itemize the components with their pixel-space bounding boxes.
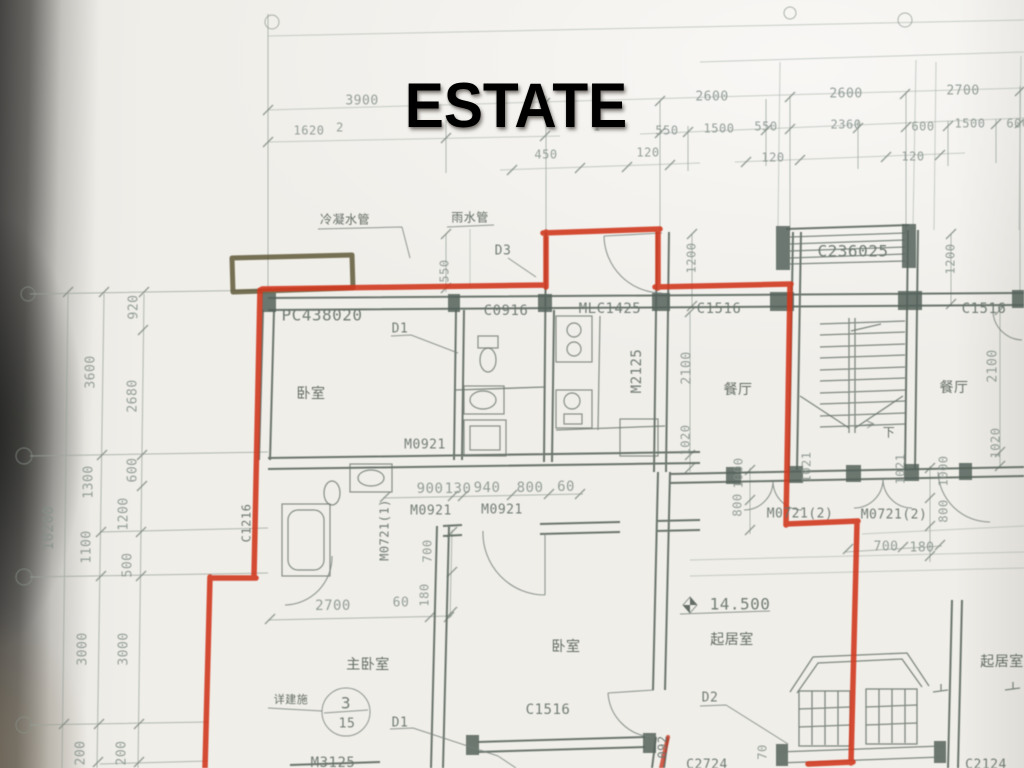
- elevation-marker-icon: [683, 597, 697, 613]
- dim-2600-a: 2600: [695, 90, 728, 105]
- dim-1500-b: 1500: [955, 117, 986, 131]
- room-living-right: 起居室: [980, 653, 1024, 670]
- dim-200-a: 200: [74, 741, 89, 766]
- dim-2700-top: 2700: [946, 84, 979, 99]
- dim-600-b: 600: [1006, 117, 1024, 131]
- label-m0721-1: M0721(1): [378, 499, 392, 561]
- dim-1200-mid-a: 1200: [685, 243, 699, 274]
- label-stairs-down: 下: [883, 426, 896, 440]
- dim-200-b: 200: [115, 741, 130, 766]
- dim-1020-right: 1020: [989, 428, 1003, 459]
- dim-70: 70: [756, 744, 770, 759]
- label-c2724: C2724: [686, 758, 728, 768]
- dim-700-mid: 700: [421, 539, 435, 562]
- dim-3900: 3900: [345, 94, 378, 109]
- dim-2680: 2680: [126, 379, 141, 412]
- room-dining-left: 餐厅: [724, 382, 753, 398]
- walls-layer: [259, 224, 1024, 768]
- label-c2124: C2124: [965, 758, 1007, 768]
- label-m0921-a: M0921: [410, 504, 452, 519]
- dim-2600-b: 2600: [829, 87, 862, 102]
- dim-800-a: 800: [731, 493, 745, 516]
- dim-120-a: 120: [636, 146, 659, 160]
- dimension-ticks: [59, 86, 1024, 767]
- dim-60-bot: 60: [393, 596, 410, 611]
- dim-1200-mid-b: 1200: [944, 244, 958, 275]
- label-d1-top: D1: [392, 322, 409, 337]
- dim-2100-right: 2100: [986, 349, 1001, 382]
- dim-920: 920: [127, 295, 142, 320]
- dim-600-a: 600: [911, 120, 934, 134]
- dim-10200: 10200: [41, 506, 57, 551]
- dim-3600: 3600: [84, 355, 99, 388]
- room-dining-right: 餐厅: [940, 380, 969, 396]
- label-c1516-bot: C1516: [526, 702, 571, 718]
- label-m3125: M3125: [311, 755, 356, 768]
- kitchen-fixtures: [556, 316, 665, 456]
- bay-window: [778, 653, 942, 763]
- label-d1-bot: D1: [392, 716, 409, 731]
- labels-layer: 3900260026002700162021550150055023606001…: [41, 84, 1024, 768]
- dim-940: 940: [474, 480, 501, 496]
- dim-180-bot: 180: [910, 541, 935, 556]
- dim-partial-2: 2: [336, 121, 344, 135]
- dim-600-left: 600: [126, 458, 141, 483]
- slide-title: ESTATE: [393, 70, 639, 142]
- dim-900: 900: [417, 481, 444, 497]
- note-cold-pipe: 冷凝水管: [320, 212, 370, 227]
- dim-1200-left: 1200: [117, 497, 132, 530]
- dim-2700-bot: 2700: [315, 598, 351, 614]
- label-c0916: C0916: [484, 303, 529, 319]
- dim-1000-a: 1000: [732, 458, 746, 489]
- detail-circle-den: 15: [339, 717, 356, 732]
- label-m0921-b: M0921: [481, 503, 523, 518]
- room-bedroom-bot: 卧室: [552, 638, 581, 655]
- note-rain-pipe: 雨水管: [451, 210, 489, 225]
- dim-1020-mid: 1020: [679, 425, 693, 456]
- label-d2: D2: [702, 691, 719, 706]
- dim-550-b: 550: [754, 120, 777, 134]
- dim-3000-a: 3000: [76, 632, 91, 665]
- dim-800-b: 800: [937, 499, 951, 522]
- dim-1021-b: 1021: [894, 454, 908, 485]
- label-d3: D3: [495, 244, 512, 259]
- elev-value: 14.500: [710, 595, 771, 614]
- dim-60-mid: 60: [557, 479, 575, 495]
- label-m0721-2b: M0721(2): [861, 508, 928, 523]
- label-c236025: C236025: [818, 242, 889, 261]
- note-detail-ref: 详建施: [274, 692, 309, 706]
- label-m2125: M2125: [629, 349, 645, 394]
- label-pc438020: PC438020: [281, 306, 362, 325]
- label-c1516-top: C1516: [697, 301, 742, 317]
- dim-1100: 1100: [80, 530, 95, 563]
- dim-120-b: 120: [761, 151, 784, 165]
- dim-450: 450: [534, 148, 557, 162]
- detail-circle-num: 3: [341, 694, 351, 713]
- dim-180-mid: 180: [418, 583, 432, 606]
- label-092: 092: [656, 735, 670, 758]
- dim-2360: 2360: [831, 118, 862, 132]
- dim-550-a: 550: [655, 124, 678, 138]
- label-c1216: C1216: [240, 504, 254, 543]
- label-m0921-top: M0921: [404, 438, 446, 453]
- dim-800-mid: 800: [517, 480, 544, 496]
- dim-2100-mid: 2100: [680, 351, 695, 384]
- room-bedroom-top: 卧室: [297, 385, 326, 402]
- dim-550-mid: 550: [438, 259, 452, 282]
- dim-120-c: 120: [901, 150, 924, 164]
- staircase: [800, 318, 905, 433]
- dim-700-bot: 700: [874, 540, 899, 555]
- wall-posts: [262, 224, 1024, 766]
- label-c1516-topright: C1516: [962, 301, 1007, 317]
- dim-1021-a: 1021: [800, 452, 814, 483]
- dim-1000-b: 1000: [937, 456, 951, 487]
- dim-500-left: 500: [121, 553, 136, 578]
- label-mlc1425: MLC1425: [579, 301, 642, 317]
- dim-130: 130: [445, 481, 472, 497]
- dim-1620: 1620: [294, 124, 325, 138]
- dim-1300: 1300: [82, 465, 97, 498]
- room-living: 起居室: [710, 631, 754, 648]
- room-master-bedroom: 主卧室: [346, 656, 390, 673]
- label-m0721-2a: M0721(2): [767, 507, 834, 522]
- dim-3000-b: 3000: [117, 632, 132, 665]
- dim-1500-a: 1500: [704, 122, 735, 136]
